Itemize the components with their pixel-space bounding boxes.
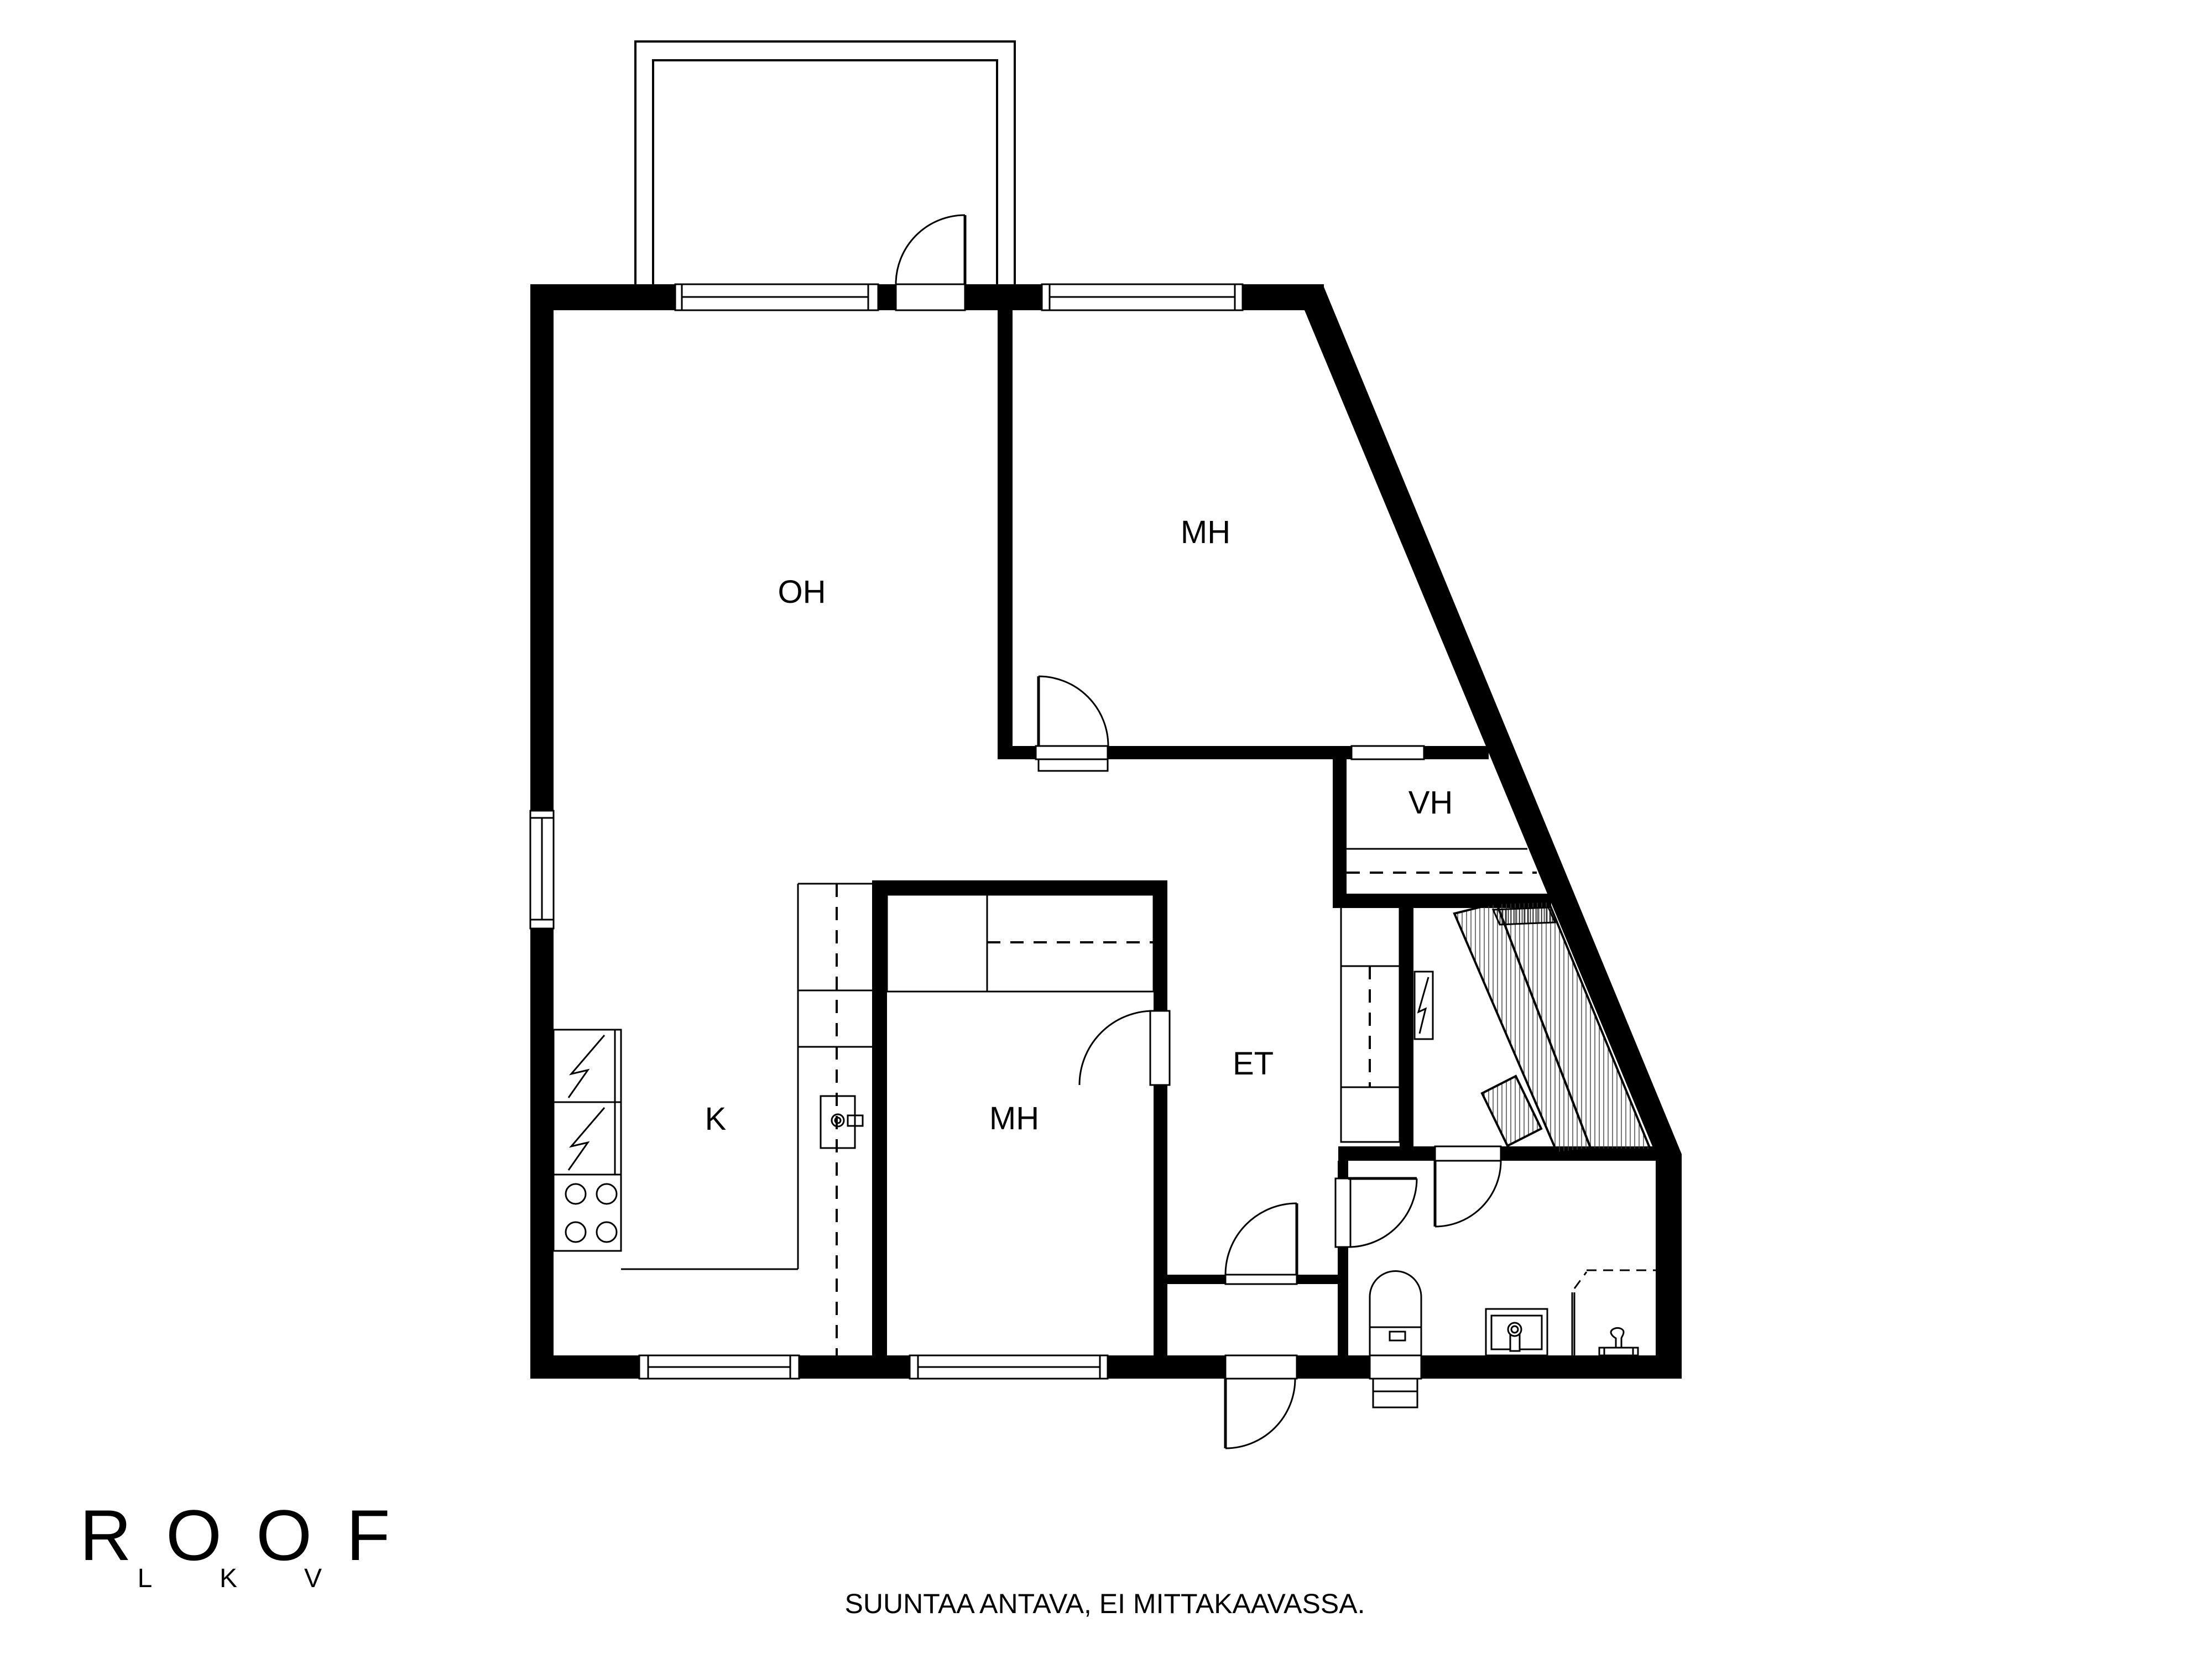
svg-text:K: K <box>220 1564 237 1593</box>
svg-text:ROOF: ROOF <box>80 1495 425 1575</box>
svg-text:SUUNTAA ANTAVA, EI MITTAKAAVAS: SUUNTAA ANTAVA, EI MITTAKAAVASSA. <box>845 1588 1365 1619</box>
svg-text:K: K <box>705 1101 727 1137</box>
svg-text:V: V <box>304 1564 322 1593</box>
svg-text:ET: ET <box>1233 1046 1274 1082</box>
svg-text:MH: MH <box>1181 514 1230 550</box>
svg-text:VH: VH <box>1408 785 1453 821</box>
svg-text:OH: OH <box>778 574 826 610</box>
svg-text:MH: MH <box>989 1100 1039 1136</box>
svg-text:L: L <box>138 1564 153 1593</box>
